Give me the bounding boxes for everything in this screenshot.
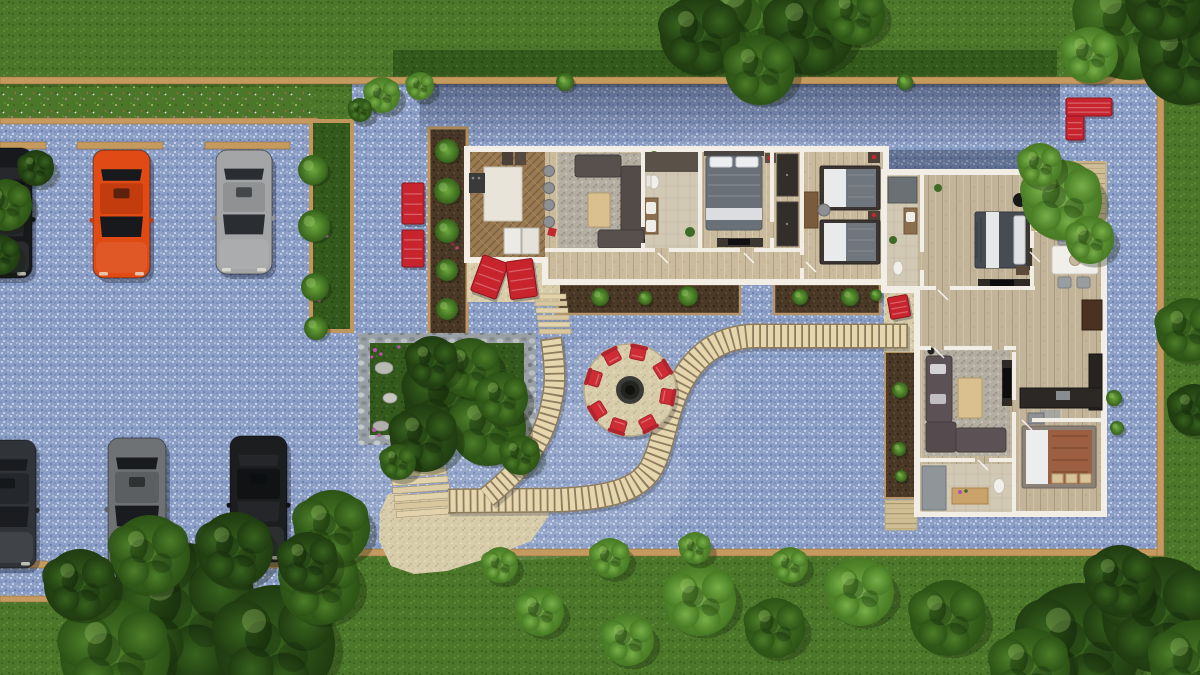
aerial-floor-plan-rendering <box>0 0 1200 675</box>
red-lamp <box>872 155 877 160</box>
appliance <box>522 228 539 254</box>
wood-sideboard <box>1082 300 1102 330</box>
sofa <box>598 230 644 248</box>
tv <box>728 239 750 245</box>
house-plant <box>685 227 695 237</box>
bar-stool <box>544 217 555 228</box>
vanity <box>952 488 988 504</box>
parking-top-rail <box>0 118 318 124</box>
patio-lounger-2 <box>505 258 539 303</box>
desk <box>804 192 818 228</box>
south-planter-b <box>774 284 880 314</box>
tv <box>990 280 1014 286</box>
flower-strip <box>0 84 311 120</box>
red-lamp <box>872 213 876 217</box>
bathroom-2 <box>887 175 918 287</box>
family-room <box>924 348 1012 457</box>
shower <box>888 177 917 203</box>
tv <box>1003 368 1011 398</box>
red-bench-2 <box>402 230 426 270</box>
deck-sofa-short <box>1066 116 1086 143</box>
bar-stool <box>544 183 555 194</box>
red-bench-1 <box>402 183 426 227</box>
house-plant <box>934 184 942 192</box>
dining-chair <box>1077 277 1090 288</box>
sectional-sofa <box>926 422 956 452</box>
scene-canvas <box>0 0 1200 675</box>
bar-stool <box>544 166 555 177</box>
bathroom-1 <box>645 152 698 248</box>
top-rail <box>0 77 1164 84</box>
toilet <box>994 479 1005 494</box>
tray-table <box>1016 266 1029 275</box>
shower <box>922 466 946 510</box>
silver-sedan-top <box>213 150 277 279</box>
dark-gray-car-bottom-left <box>0 440 40 573</box>
sofa <box>575 155 621 177</box>
toilet <box>893 261 903 275</box>
sink <box>1056 391 1070 400</box>
sectional-sofa <box>956 428 1006 452</box>
desk-chair <box>818 204 830 216</box>
bathroom-3 <box>921 464 1012 512</box>
coffee-table <box>958 378 982 418</box>
small-deck <box>885 500 917 530</box>
courtyard-armchair <box>887 294 913 322</box>
coffee-table <box>588 193 610 227</box>
house-plant <box>889 236 897 244</box>
dining-chair <box>1058 277 1071 288</box>
appliance <box>504 228 521 254</box>
orange-suv-top <box>90 150 155 283</box>
bar-stool <box>544 200 555 211</box>
